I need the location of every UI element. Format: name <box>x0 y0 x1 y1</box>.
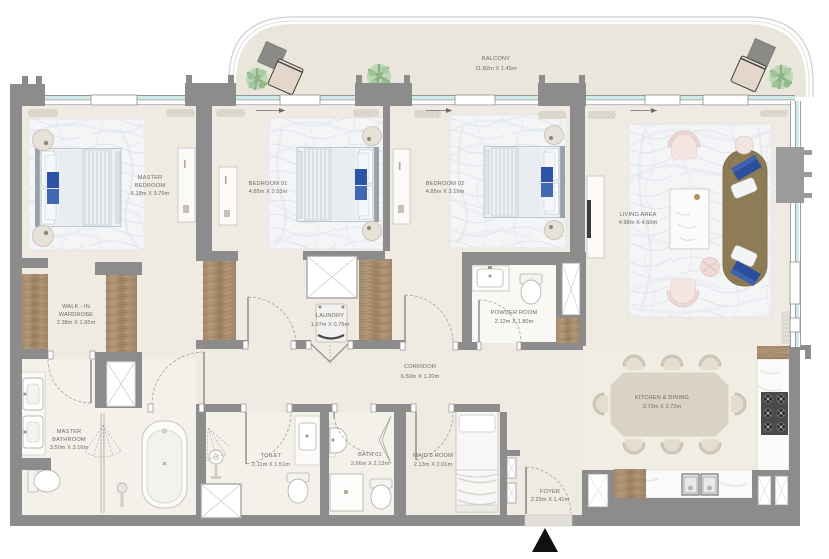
svg-text:2.25m X 1.41m: 2.25m X 1.41m <box>531 497 570 503</box>
svg-text:2.12m X 1.80m: 2.12m X 1.80m <box>495 319 534 325</box>
svg-text:1.07m X 0.76m: 1.07m X 0.76m <box>311 322 350 328</box>
svg-text:MAID'S ROOM: MAID'S ROOM <box>413 453 453 459</box>
svg-text:3.72m X 2.72m: 3.72m X 2.72m <box>643 404 682 410</box>
svg-text:MASTER: MASTER <box>138 175 163 181</box>
svg-text:2.11m X 1.51m: 2.11m X 1.51m <box>252 462 290 468</box>
svg-text:POWDER ROOM: POWDER ROOM <box>491 310 538 316</box>
svg-text:WARDROBE: WARDROBE <box>59 312 94 318</box>
svg-text:BEDROOM 02: BEDROOM 02 <box>426 181 465 187</box>
svg-text:2.38m X 1.65m: 2.38m X 1.65m <box>57 320 96 326</box>
svg-text:LIVING AREA: LIVING AREA <box>619 212 656 218</box>
svg-text:BALCONY: BALCONY <box>482 56 510 62</box>
svg-text:BEDROOM 01: BEDROOM 01 <box>249 181 288 187</box>
svg-text:2.66m X 2.13m: 2.66m X 2.13m <box>351 461 390 467</box>
svg-text:MASTER: MASTER <box>57 429 82 435</box>
svg-text:BEDROOM: BEDROOM <box>135 183 166 189</box>
svg-text:CORRIDOR: CORRIDOR <box>404 364 436 370</box>
svg-text:BATH 01: BATH 01 <box>358 452 382 458</box>
svg-text:LAUNDRY: LAUNDRY <box>316 313 344 319</box>
svg-text:TOILET: TOILET <box>261 453 282 459</box>
svg-text:4.85m X 3.19m: 4.85m X 3.19m <box>426 189 465 195</box>
svg-text:6.18m X 3.79m: 6.18m X 3.79m <box>131 191 170 197</box>
svg-text:KITCHEN & DINING: KITCHEN & DINING <box>635 395 689 401</box>
svg-text:WALK - IN: WALK - IN <box>62 304 90 310</box>
svg-text:6.50m X 1.20m: 6.50m X 1.20m <box>401 374 440 380</box>
svg-text:BATHROOM: BATHROOM <box>52 437 86 443</box>
svg-text:FOYER: FOYER <box>540 489 560 495</box>
svg-text:11.82m X 1.45m: 11.82m X 1.45m <box>475 66 517 72</box>
svg-text:3.50m X 3.16m: 3.50m X 3.16m <box>50 445 89 451</box>
svg-text:2.13m X 2.01m: 2.13m X 2.01m <box>414 462 453 468</box>
svg-text:4.85m X 3.53m: 4.85m X 3.53m <box>249 189 288 195</box>
svg-text:4.98m X 4.50m: 4.98m X 4.50m <box>619 220 658 226</box>
